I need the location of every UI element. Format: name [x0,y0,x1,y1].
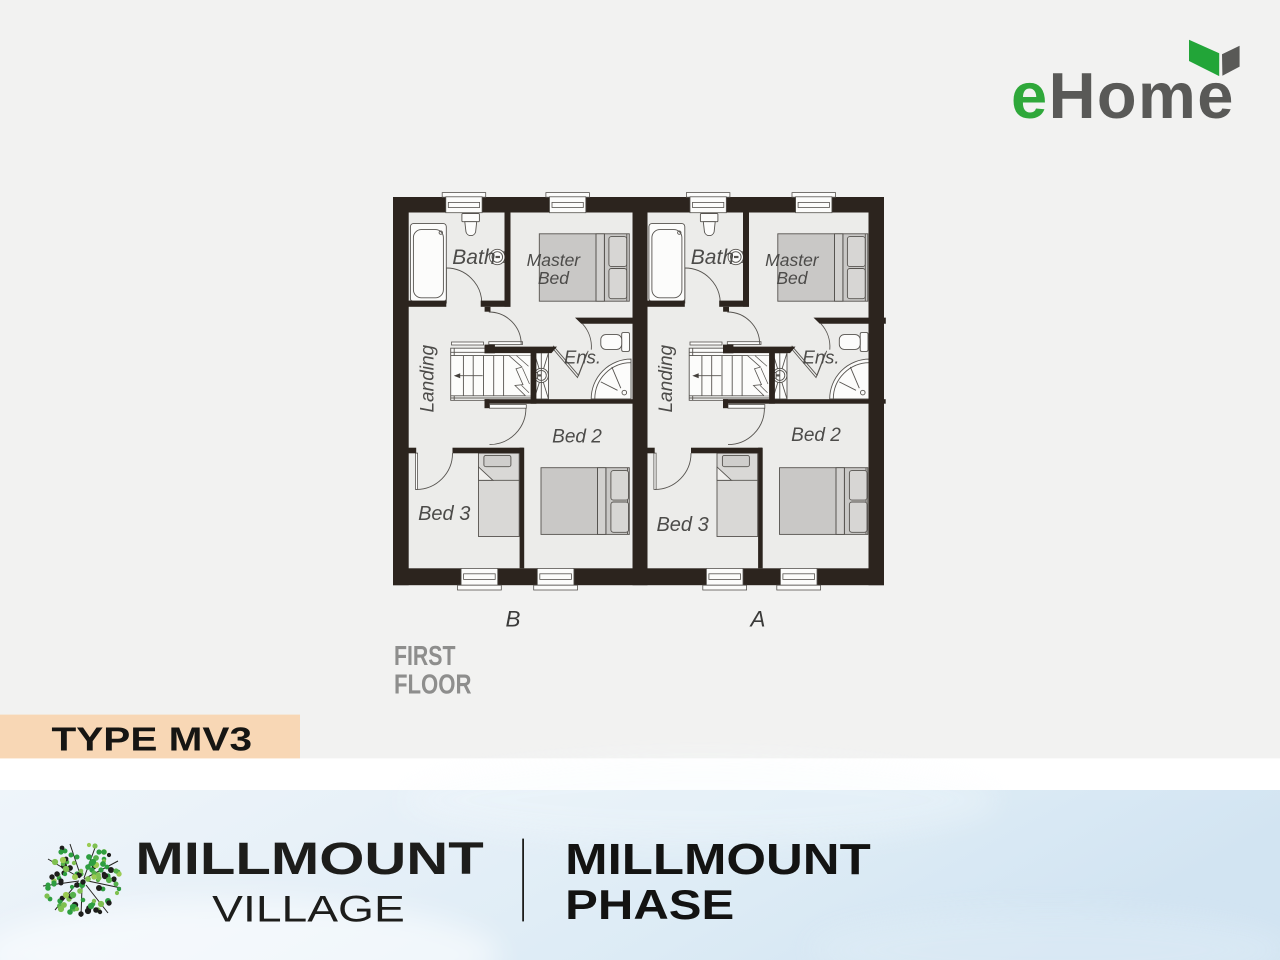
svg-text:Ens.: Ens. [564,347,601,368]
svg-text:TYPE MV3: TYPE MV3 [52,721,253,758]
svg-text:MILLMOUNT: MILLMOUNT [135,833,483,884]
svg-text:Bed 3: Bed 3 [418,503,470,525]
svg-text:Landing: Landing [418,344,439,412]
svg-text:Bath: Bath [452,246,495,269]
svg-text:Bed 2: Bed 2 [552,426,602,447]
svg-text:Bed 2: Bed 2 [791,425,841,446]
svg-text:PHASE: PHASE [565,881,734,928]
svg-text:A: A [749,607,766,632]
svg-text:Landing: Landing [656,344,677,412]
svg-text:Bed 3: Bed 3 [656,514,708,536]
svg-text:Ens.: Ens. [802,347,839,368]
svg-text:B: B [506,607,521,632]
svg-text:MILLMOUNT: MILLMOUNT [565,835,871,884]
svg-text:Bed: Bed [538,268,570,288]
svg-text:eHome: eHome [1011,59,1235,132]
svg-text:VILLAGE: VILLAGE [212,888,405,929]
svg-text:Master: Master [765,250,820,270]
svg-text:Bath: Bath [691,246,734,269]
svg-text:FIRST: FIRST [394,640,456,671]
svg-text:FLOOR: FLOOR [394,669,472,700]
svg-text:Bed: Bed [776,268,808,288]
svg-text:Master: Master [527,250,582,270]
